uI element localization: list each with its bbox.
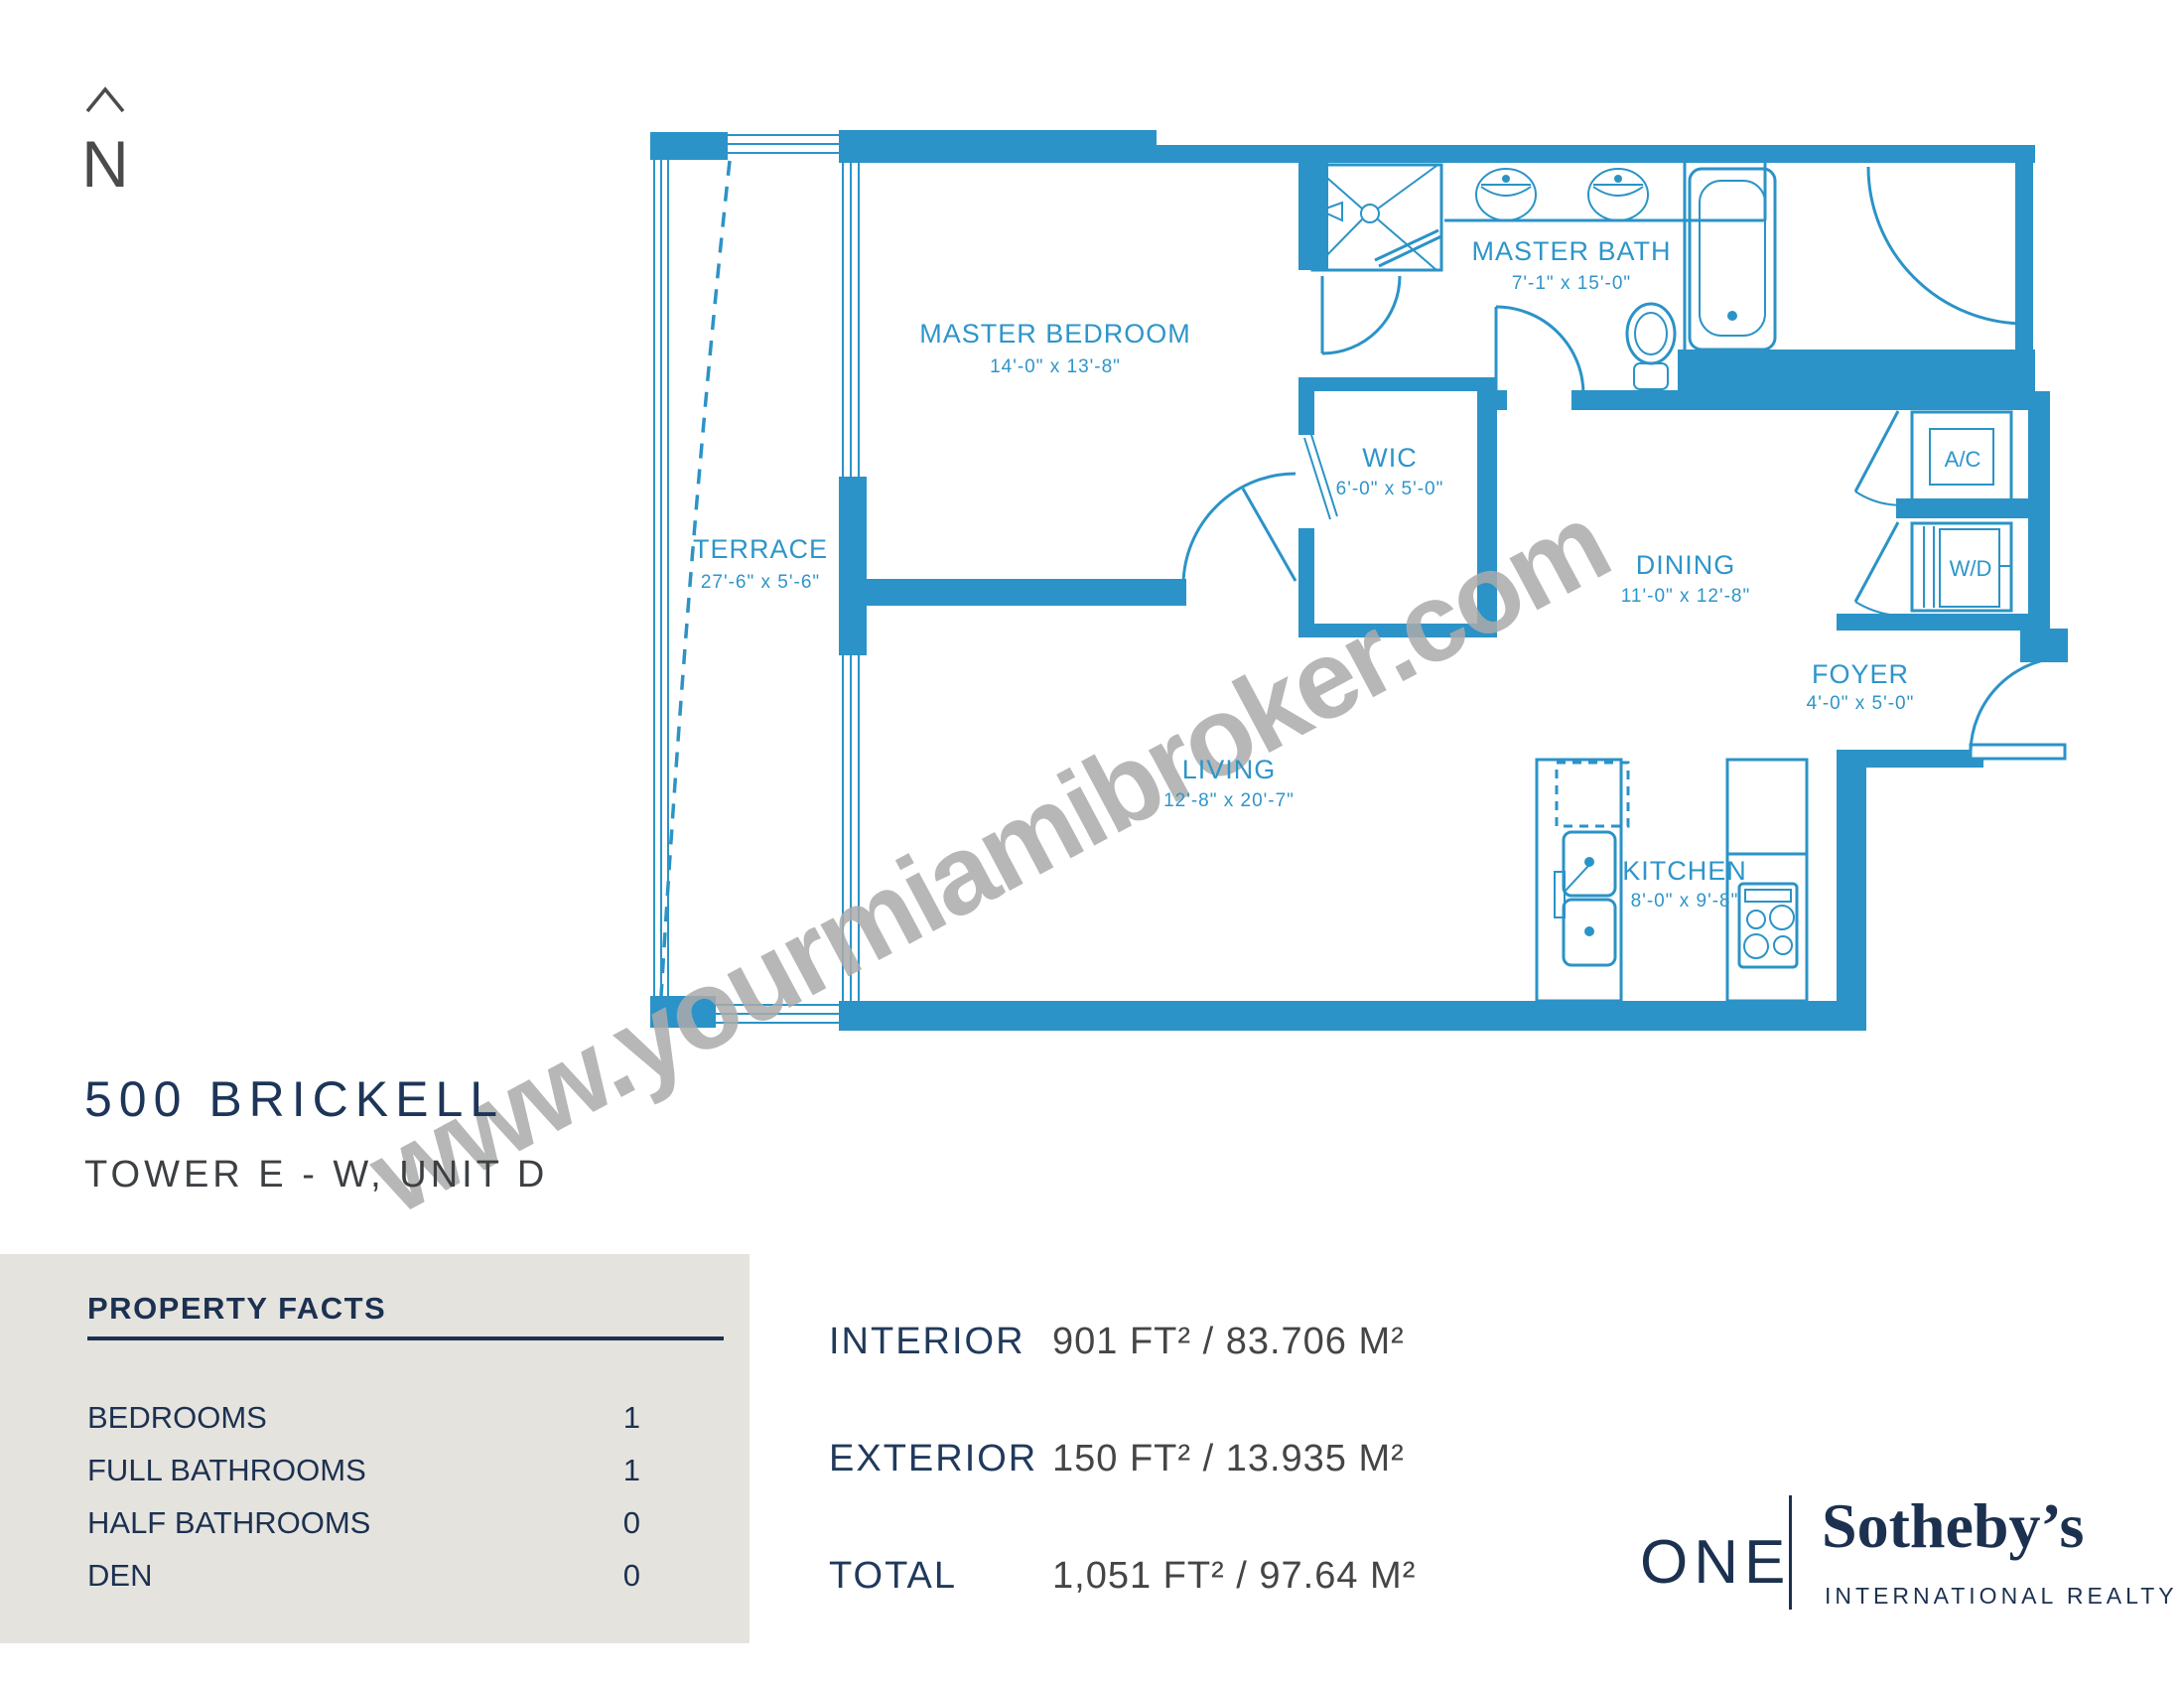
room-label-master-bedroom: MASTER BEDROOM 14'-0" x 13'-8" bbox=[919, 319, 1191, 377]
north-chevron-icon bbox=[87, 89, 123, 111]
fact-value: 0 bbox=[623, 1505, 640, 1541]
entry-door-arc bbox=[1971, 657, 2067, 752]
north-arrow: N bbox=[81, 89, 129, 201]
area-label: INTERIOR bbox=[829, 1321, 1052, 1363]
fact-row-den: DEN 0 bbox=[87, 1558, 640, 1594]
area-label: EXTERIOR bbox=[829, 1438, 1052, 1480]
area-value: 150 FT² / 13.935 M² bbox=[1052, 1438, 1405, 1480]
svg-text:14'-0" x 13'-8": 14'-0" x 13'-8" bbox=[990, 356, 1121, 377]
fact-row-full-bathrooms: FULL BATHROOMS 1 bbox=[87, 1453, 640, 1488]
logo-one: ONE bbox=[1640, 1527, 1791, 1598]
svg-text:LIVING: LIVING bbox=[1182, 755, 1277, 784]
logo-sothebys: Sotheby’s bbox=[1822, 1489, 2084, 1563]
room-label-living: LIVING 12'-8" x 20'-7" bbox=[1163, 755, 1295, 811]
shower bbox=[1312, 165, 1441, 270]
terrace-railing bbox=[654, 160, 668, 996]
svg-text:12'-8" x 20'-7": 12'-8" x 20'-7" bbox=[1163, 790, 1295, 811]
wd-closet-label: W/D bbox=[1950, 556, 1992, 581]
svg-text:KITCHEN: KITCHEN bbox=[1622, 856, 1747, 886]
fact-row-bedrooms: BEDROOMS 1 bbox=[87, 1400, 640, 1436]
area-row-exterior: EXTERIOR 150 FT² / 13.935 M² bbox=[829, 1438, 1405, 1480]
svg-text:8'-0" x 9'-8": 8'-0" x 9'-8" bbox=[1631, 891, 1739, 912]
fact-label: BEDROOMS bbox=[87, 1400, 267, 1436]
logo-tagline: INTERNATIONAL REALTY bbox=[1825, 1583, 2178, 1610]
area-row-interior: INTERIOR 901 FT² / 83.706 M² bbox=[829, 1321, 1405, 1363]
title-block: 500 BRICKELL TOWER E - W, UNIT D bbox=[84, 1070, 548, 1196]
bathtub bbox=[1685, 163, 1775, 350]
svg-text:WIC: WIC bbox=[1362, 443, 1417, 473]
room-label-terrace: TERRACE 27'-6" x 5'-6" bbox=[693, 534, 828, 593]
svg-text:7'-1" x 15'-0": 7'-1" x 15'-0" bbox=[1512, 273, 1631, 294]
toilet bbox=[1627, 304, 1675, 389]
svg-text:TERRACE: TERRACE bbox=[693, 534, 828, 564]
svg-text:DINING: DINING bbox=[1636, 550, 1736, 580]
svg-text:FOYER: FOYER bbox=[1812, 659, 1909, 689]
svg-text:MASTER BATH: MASTER BATH bbox=[1471, 236, 1671, 266]
room-label-foyer: FOYER 4'-0" x 5'-0" bbox=[1807, 659, 1915, 714]
fact-value: 0 bbox=[623, 1558, 640, 1594]
flyer-page: N bbox=[0, 0, 2184, 1688]
area-row-total: TOTAL 1,051 FT² / 97.64 M² bbox=[829, 1555, 1416, 1598]
fact-value: 1 bbox=[623, 1453, 640, 1488]
svg-text:MASTER BEDROOM: MASTER BEDROOM bbox=[919, 319, 1191, 349]
fact-label: HALF BATHROOMS bbox=[87, 1505, 370, 1541]
unit-subtitle: TOWER E - W, UNIT D bbox=[84, 1154, 548, 1196]
fact-label: FULL BATHROOMS bbox=[87, 1453, 366, 1488]
svg-text:11'-0" x 12'-8": 11'-0" x 12'-8" bbox=[1621, 586, 1750, 607]
area-value: 901 FT² / 83.706 M² bbox=[1052, 1321, 1405, 1363]
entry-door-leaf bbox=[1971, 745, 2065, 759]
area-value: 1,051 FT² / 97.64 M² bbox=[1052, 1555, 1416, 1598]
room-label-wic: WIC 6'-0" x 5'-0" bbox=[1336, 443, 1444, 499]
logo-divider bbox=[1789, 1495, 1792, 1610]
fact-row-half-bathrooms: HALF BATHROOMS 0 bbox=[87, 1505, 640, 1541]
room-label-dining: DINING 11'-0" x 12'-8" bbox=[1621, 550, 1750, 607]
svg-text:4'-0" x 5'-0": 4'-0" x 5'-0" bbox=[1807, 693, 1915, 714]
room-label-kitchen: KITCHEN 8'-0" x 9'-8" bbox=[1622, 856, 1747, 912]
kitchen-island-sink bbox=[1537, 760, 1628, 1001]
svg-text:6'-0" x 5'-0": 6'-0" x 5'-0" bbox=[1336, 479, 1444, 499]
north-label: N bbox=[81, 127, 129, 201]
vanity-sinks bbox=[1444, 163, 1765, 220]
property-facts-title: PROPERTY FACTS bbox=[87, 1291, 386, 1327]
svg-text:27'-6" x 5'-6": 27'-6" x 5'-6" bbox=[701, 572, 820, 593]
property-facts-rule bbox=[87, 1336, 724, 1340]
fact-value: 1 bbox=[623, 1400, 640, 1436]
area-label: TOTAL bbox=[829, 1555, 1052, 1598]
ac-closet-label: A/C bbox=[1945, 447, 1981, 472]
fact-label: DEN bbox=[87, 1558, 152, 1594]
room-label-master-bath: MASTER BATH 7'-1" x 15'-0" bbox=[1471, 236, 1671, 294]
building-title: 500 BRICKELL bbox=[84, 1070, 548, 1128]
